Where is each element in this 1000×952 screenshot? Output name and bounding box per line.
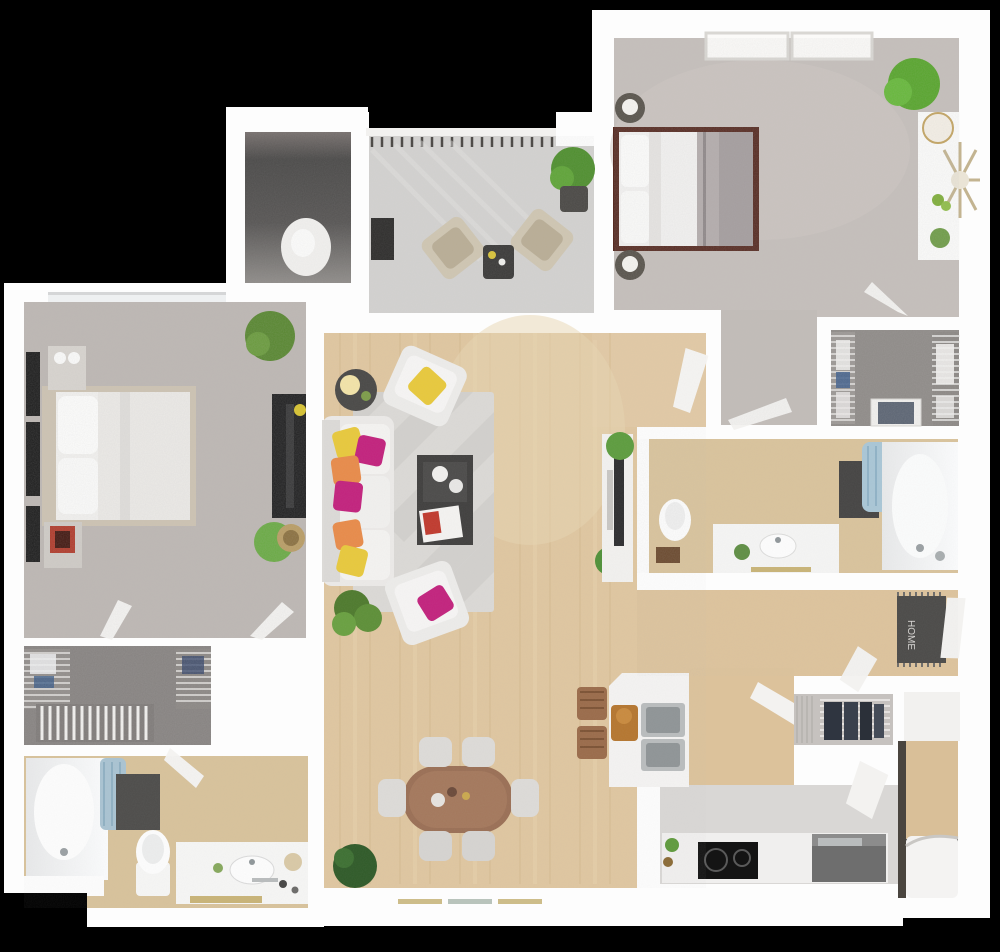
svg-text:HOME: HOME — [905, 620, 916, 650]
